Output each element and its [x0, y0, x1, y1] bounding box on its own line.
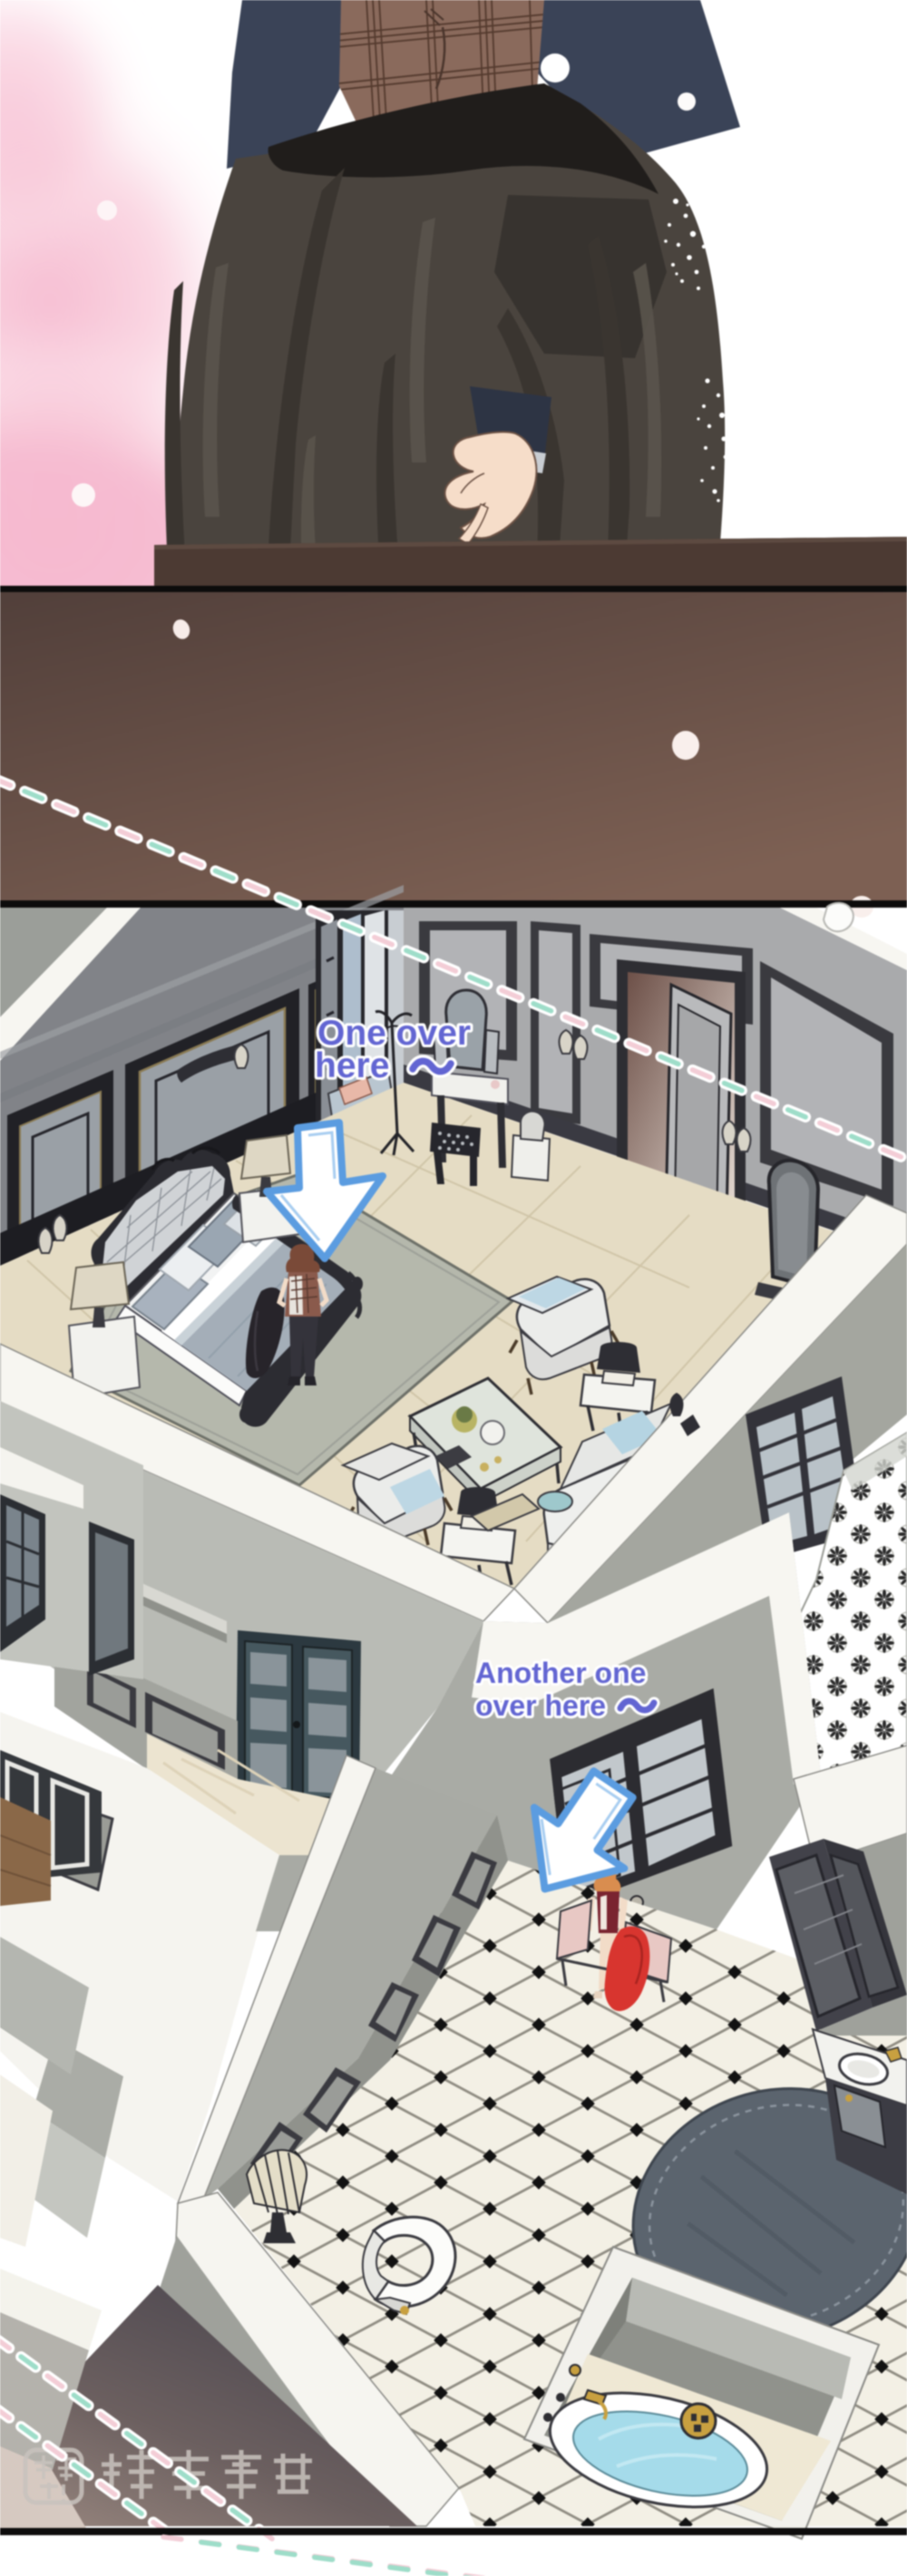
svg-text:Another one: Another one [475, 1657, 646, 1689]
svg-text:here: here [315, 1046, 389, 1085]
svg-text:over here: over here [475, 1689, 606, 1722]
